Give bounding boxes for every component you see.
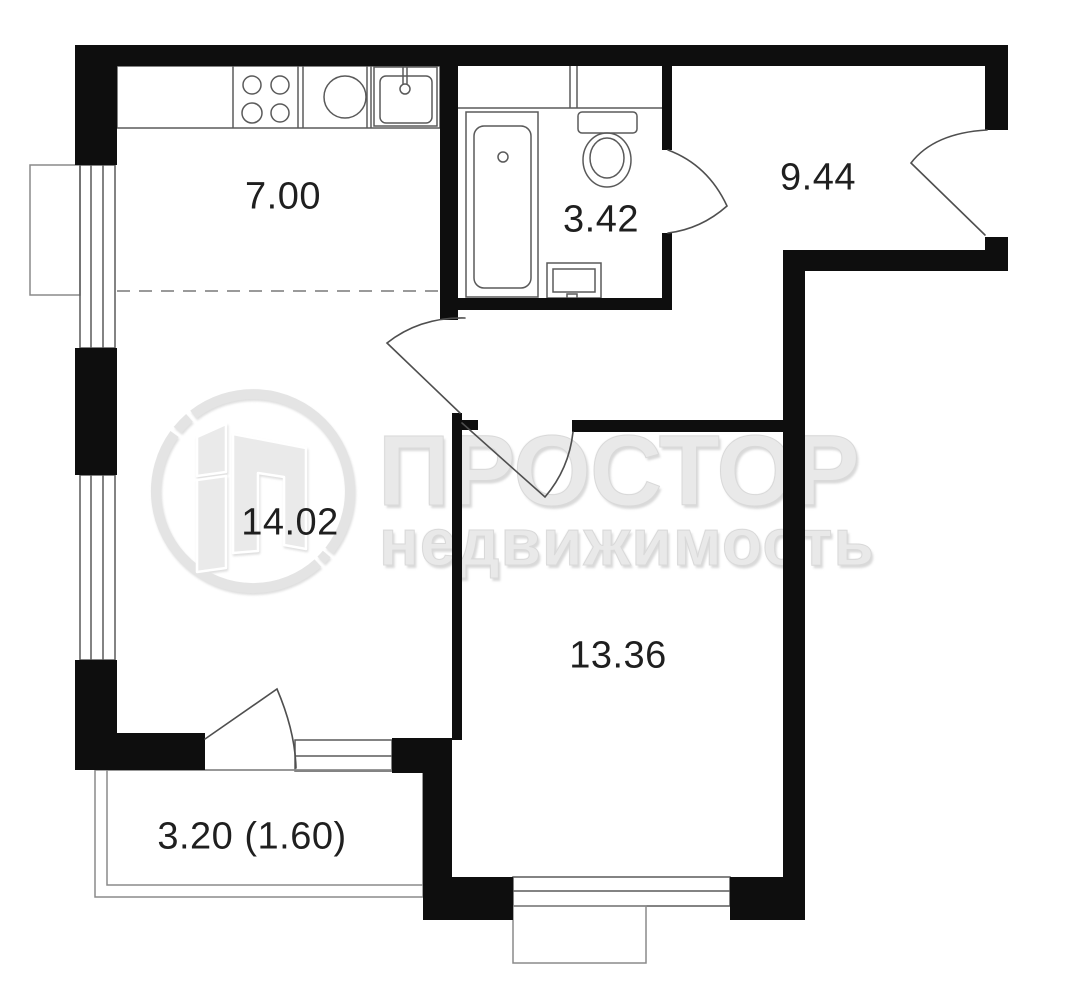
wall-bathroom-bottom	[446, 298, 672, 310]
room-label-kitchen: 7.00	[245, 176, 321, 219]
stove-burners-symbol	[242, 76, 289, 123]
wall-living-bottom-left	[107, 733, 205, 770]
room-label-bedroom: 13.36	[569, 635, 667, 678]
room-label-living-room: 14.02	[241, 502, 339, 545]
wall-bedroom-bottom-right	[730, 877, 805, 920]
wall-bathroom-right-lower	[662, 233, 672, 298]
wall-hallway-step	[805, 250, 1008, 271]
window-bedroom	[513, 877, 730, 906]
window-left-living	[80, 475, 115, 660]
wall-living-bedroom-divider	[452, 413, 462, 740]
wall-left-upper	[75, 45, 117, 165]
wall-bedroom-top	[572, 420, 805, 432]
room-label-balcony: 3.20 (1.60)	[157, 816, 346, 859]
toilet-symbol	[578, 112, 637, 187]
wall-right-outer-upper	[985, 45, 1008, 130]
wall-balcony-bedroom-divider	[423, 738, 452, 920]
wall-left-middle	[75, 348, 117, 475]
walls	[75, 45, 1008, 920]
window-left-kitchen	[30, 165, 115, 348]
bathroom-door-arc	[668, 150, 727, 233]
room-label-bathroom: 3.42	[563, 199, 639, 242]
wall-bathroom-right-upper	[662, 63, 672, 150]
entry-door-arc	[911, 130, 987, 235]
bathroom-fixtures	[458, 63, 662, 305]
living-room-door-arc	[387, 318, 465, 413]
kitchen-counter	[117, 63, 440, 128]
wall-bedroom-right	[783, 250, 805, 920]
wall-living-bottom-right	[392, 738, 423, 773]
bathtub-symbol	[466, 112, 538, 297]
wall-bathroom-left	[440, 63, 458, 320]
round-sink-symbol	[324, 76, 366, 118]
balcony-door-arc	[205, 689, 296, 768]
room-label-hallway: 9.44	[780, 157, 856, 200]
wall-bedroom-bottom-left	[452, 877, 513, 920]
kitchen-sink-symbol	[374, 63, 437, 126]
bedroom-window-ledge	[513, 906, 646, 963]
window-balcony-door	[295, 740, 392, 771]
wall-top	[75, 45, 1008, 66]
floor-plan: ПРОСТОР недвижимость	[0, 0, 1067, 999]
bedroom-door-arc	[462, 423, 573, 497]
